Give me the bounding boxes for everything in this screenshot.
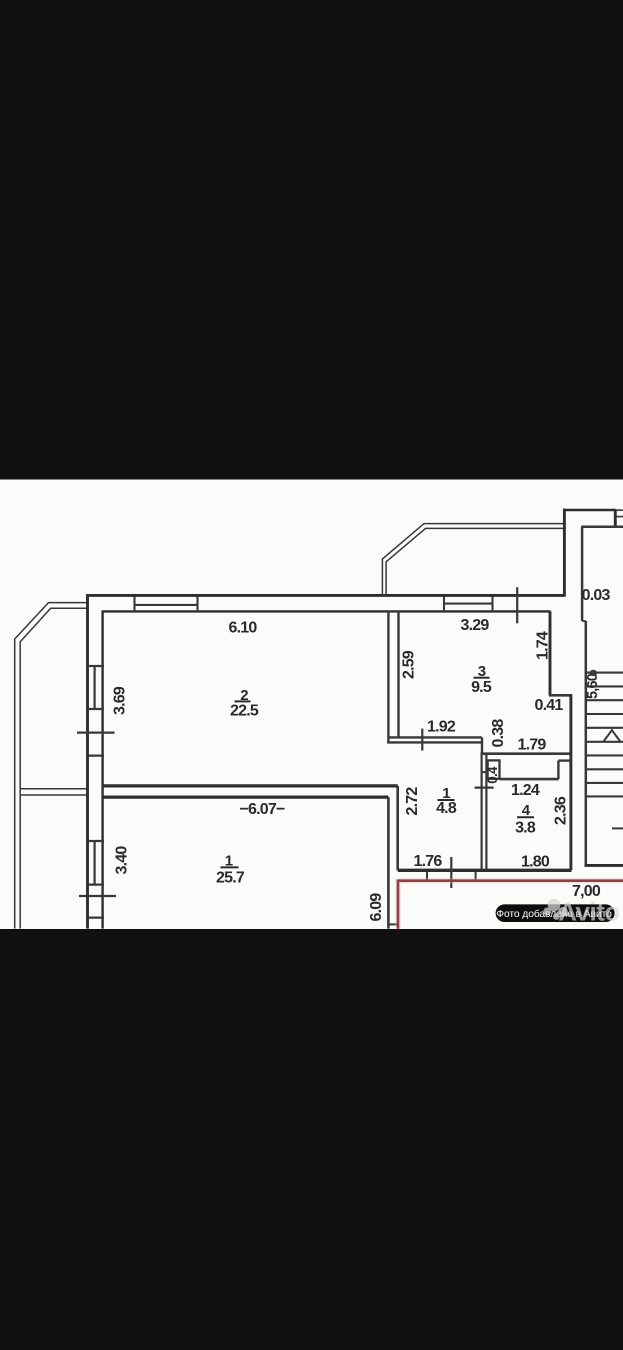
svg-text:3.29: 3.29 — [461, 617, 490, 634]
svg-text:2.59: 2.59 — [401, 650, 418, 679]
svg-text:1.80: 1.80 — [521, 854, 550, 871]
svg-text:0.03: 0.03 — [582, 587, 611, 604]
svg-text:2.72: 2.72 — [404, 787, 421, 816]
svg-text:25.7: 25.7 — [216, 869, 245, 886]
svg-text:6.10: 6.10 — [229, 620, 258, 637]
svg-text:3.40: 3.40 — [114, 846, 131, 875]
svg-text:1.24: 1.24 — [511, 782, 540, 799]
svg-text:2.36: 2.36 — [553, 796, 570, 825]
svg-text:22.5: 22.5 — [230, 702, 259, 719]
svg-text:5,60: 5,60 — [585, 673, 601, 699]
svg-text:4.8: 4.8 — [436, 800, 457, 817]
svg-text:6.09: 6.09 — [368, 893, 385, 922]
svg-text:0.38: 0.38 — [490, 719, 507, 748]
svg-text:−6.07−: −6.07− — [239, 801, 284, 818]
svg-text:9.5: 9.5 — [471, 679, 492, 696]
svg-text:Avito: Avito — [558, 897, 620, 927]
svg-text:0.4: 0.4 — [485, 766, 500, 784]
svg-text:1.74: 1.74 — [535, 631, 552, 660]
svg-text:1.76: 1.76 — [414, 853, 443, 870]
svg-text:0.41: 0.41 — [535, 697, 564, 714]
svg-text:1.92: 1.92 — [427, 719, 456, 736]
svg-text:1.79: 1.79 — [518, 737, 547, 754]
svg-text:3.69: 3.69 — [112, 686, 129, 715]
svg-text:3.8: 3.8 — [515, 819, 536, 836]
